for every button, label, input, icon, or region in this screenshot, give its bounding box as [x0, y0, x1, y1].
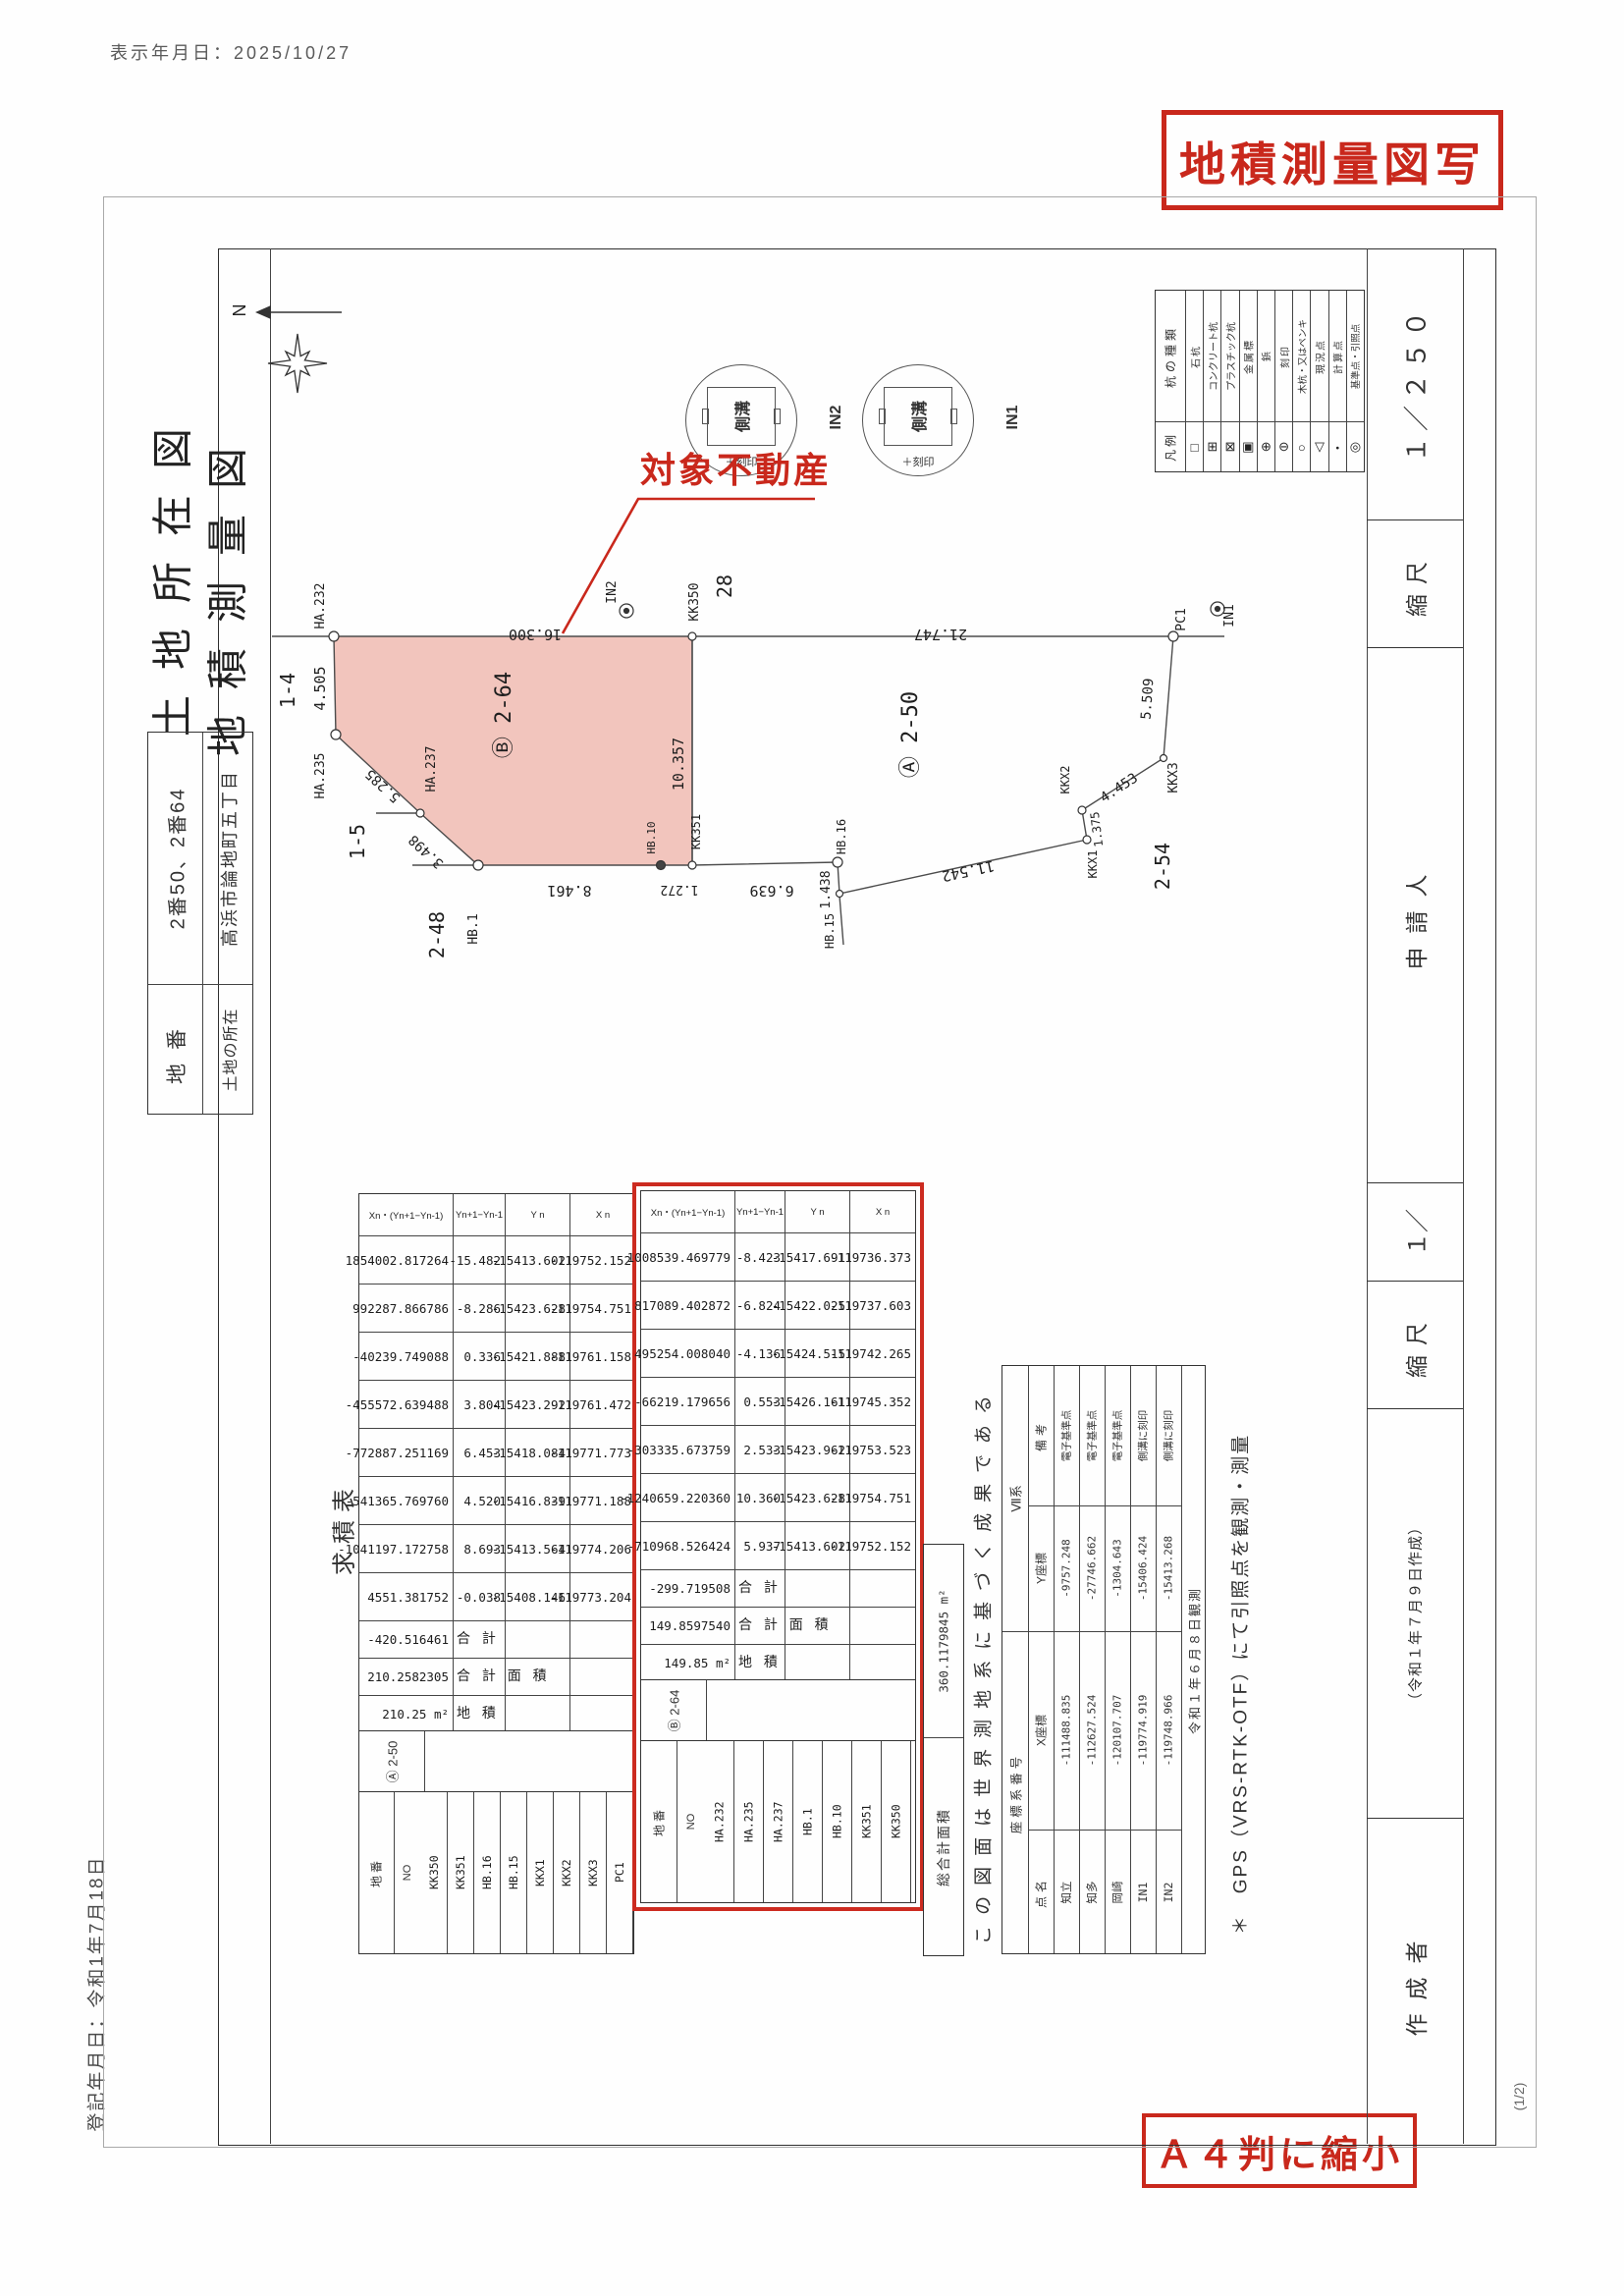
header-yn: Y n	[506, 1194, 569, 1235]
point-name: KK351	[448, 1792, 474, 1953]
table1-grid: Xn・(Yn+1−Yn-1) 1854002.817264992287.8667…	[358, 1193, 634, 1731]
legend-type-header: 杭の種類	[1163, 324, 1179, 387]
remark-value: 電子基準点	[1059, 1410, 1074, 1462]
grand-total-box: 360.1179845 m² 総合計面積	[923, 1544, 964, 1956]
gutter-label: 側溝	[730, 401, 753, 432]
table2-grid: Xn・(Yn+1−Yn-1) 1008539.469779817089.4028…	[640, 1190, 916, 1680]
name-cell: 岡崎	[1105, 1830, 1130, 1955]
marker-kkx2	[1078, 806, 1086, 814]
name-cell: 知多	[1079, 1830, 1105, 1955]
xn-value: -119754.751	[570, 1284, 635, 1332]
yn-values: -15413.602-15423.628-15421.888-15423.292…	[506, 1235, 569, 1620]
legend-label: 現況点	[1313, 339, 1327, 374]
xn-value: -119753.523	[850, 1425, 915, 1473]
legend-table: 杭の種類 凡例 石杭□ コンクリート杭⊞ プラスチック杭⊠ 金属標▣ 鋲⊕ 刻印…	[1155, 290, 1365, 472]
sys-value-cell: Ⅶ系	[1002, 1366, 1028, 1631]
col-yn: Y n -15413.602-15423.628-15421.888-15423…	[505, 1194, 569, 1730]
remark-value: 電子基準点	[1085, 1410, 1100, 1462]
chiban-header: 地番	[651, 1807, 668, 1836]
xn-value: -119745.352	[850, 1377, 915, 1425]
x-cell: -119748.966	[1156, 1631, 1181, 1830]
pt-pc1: PC1	[1174, 608, 1189, 630]
pt-kk351: KK351	[689, 814, 703, 849]
name-value: IN1	[1136, 1883, 1150, 1903]
y-cell: -27746.662	[1079, 1505, 1105, 1631]
gutter-tab-left	[702, 409, 709, 424]
observation-note-cell: 令和１年６月８日観測	[1181, 1366, 1207, 1955]
scale2-label: 縮尺	[1398, 1313, 1432, 1378]
spacer	[706, 1680, 915, 1740]
chiban-label: 地番	[161, 1015, 190, 1084]
legend-item: 基準点・引照点◎	[1346, 291, 1364, 471]
y-value: -1304.643	[1111, 1539, 1124, 1598]
scale-value-cell: １／２５０	[1367, 248, 1463, 520]
point-name: HA.235	[734, 1741, 764, 1902]
point-name-band: 地番 NO HA.232HA.235HA.237HB.1HB.10KK351KK…	[640, 1741, 916, 1903]
y-value: -15406.424	[1137, 1536, 1150, 1601]
remark-cell: 電子基準点	[1054, 1366, 1079, 1505]
point-name: KK350	[421, 1792, 448, 1953]
total-label: 合 計	[457, 1628, 500, 1648]
adj-parcel-1-4: 1-4	[276, 673, 299, 708]
legend-symbol: ⊕	[1258, 422, 1274, 471]
pt-hb1: HB.1	[466, 913, 481, 944]
no-header: NO	[685, 1814, 697, 1831]
cadastral-map: 16.300 21.747 8.461 1.272 6.639 11.542 4…	[226, 550, 1267, 1002]
remark-value: 側溝に刻印	[1136, 1410, 1151, 1462]
y-header: Y座標	[1033, 1553, 1050, 1584]
legend-label: 鋲	[1259, 352, 1273, 361]
spacer	[570, 1695, 635, 1732]
col-product: Xn・(Yn+1−Yn-1) 1854002.817264992287.8667…	[359, 1194, 453, 1730]
point-name: PC1	[607, 1792, 633, 1953]
header-dy: Yn+1−Yn-1	[735, 1191, 785, 1232]
pt-ha235: HA.235	[313, 753, 328, 799]
product-value: -455572.639488	[359, 1380, 453, 1428]
spacer	[850, 1644, 915, 1681]
area-table-2-64: Xn・(Yn+1−Yn-1) 1008539.469779817089.4028…	[640, 1190, 916, 1903]
header-yn: Y n	[785, 1191, 849, 1232]
legend-item: 金属標▣	[1239, 291, 1257, 471]
xn-value: -119754.751	[850, 1473, 915, 1521]
engrave-mark-label: ＋刻印	[902, 454, 935, 469]
point-name: HA.232	[705, 1741, 734, 1902]
y-value: -27746.662	[1086, 1536, 1099, 1601]
y-header-cell: Y座標	[1028, 1505, 1054, 1631]
location-label-cell: 土地の所在	[203, 984, 254, 1116]
remark-cell: 側溝に刻印	[1130, 1366, 1156, 1505]
product-value: -1041197.172758	[359, 1524, 453, 1572]
legend-item: 現況点▽	[1310, 291, 1327, 471]
product-value: 495254.008040	[641, 1329, 734, 1377]
spacer	[850, 1607, 915, 1644]
col-dy: Yn+1−Yn-1 -15.482-8.2860.3363.8046.4534.…	[453, 1194, 505, 1730]
point-name: HB.1	[793, 1741, 823, 1902]
xn-value: -119773.204	[570, 1572, 635, 1620]
pt-ha232: HA.232	[313, 583, 328, 629]
dim-b-bottom2: 1.272	[660, 882, 698, 897]
area-value: 210.25 m²	[359, 1695, 453, 1732]
pt-kkx1: KKX1	[1086, 850, 1100, 879]
pt-in2: IN2	[605, 580, 620, 603]
spacer	[570, 1658, 635, 1695]
gps-note: ＊ GPS（VRS-RTK-OTF）にて引照点を観測・測量	[1226, 1434, 1253, 1936]
xn-value: -119752.152	[850, 1521, 915, 1569]
x-cell: -119774.919	[1130, 1631, 1156, 1830]
product-value: 1854002.817264	[359, 1235, 453, 1284]
legend-item: 石杭□	[1185, 291, 1203, 471]
product-value: -710968.526424	[641, 1521, 734, 1569]
author-label: 作成者	[1398, 1927, 1432, 2036]
extension-line	[839, 896, 843, 945]
name-cell: 知立	[1054, 1830, 1079, 1955]
legend-symbol: ▽	[1311, 422, 1327, 471]
y-cell: -1304.643	[1105, 1505, 1130, 1631]
parcel-id-strip: Ⓑ 2-64	[640, 1680, 916, 1741]
xn-value: -119761.472	[570, 1380, 635, 1428]
parcel-id-cell: Ⓑ 2-64	[641, 1680, 706, 1740]
legend-symbol: ⊞	[1204, 422, 1220, 471]
dy-values: -15.482-8.2860.3363.8046.4534.5208.693-0…	[454, 1235, 505, 1620]
point-name: HB.10	[823, 1741, 852, 1902]
applicant-cell: 申請人	[1367, 648, 1463, 1183]
legend-label: 石杭	[1187, 345, 1202, 368]
legend-item: 刻印⊖	[1274, 291, 1292, 471]
xn-values: -119752.152-119754.751-119761.158-119761…	[570, 1235, 635, 1620]
display-date: 表示年月日：2025/10/27	[110, 39, 352, 65]
product-value: -1240659.220360	[641, 1473, 734, 1521]
titleblock-divider-2	[1463, 248, 1464, 2144]
marker-ha232	[329, 631, 339, 641]
scale-value: １／２５０	[1397, 305, 1434, 463]
grand-total-value-cell: 360.1179845 m²	[924, 1545, 963, 1737]
x-value: -111488.835	[1060, 1695, 1073, 1767]
product-value: -66219.179656	[641, 1377, 734, 1425]
xn-value: -119736.373	[850, 1232, 915, 1281]
marker-kkx1	[1083, 836, 1091, 844]
total-area-label: 合 計 面 積	[457, 1666, 551, 1685]
chiban-header-cell: 地番	[641, 1741, 677, 1902]
marker-hb1	[473, 860, 483, 870]
frame-inner-line	[270, 248, 271, 2144]
col-xn: X n -119752.152-119754.751-119761.158-11…	[569, 1194, 635, 1730]
marker-in1-dot	[1216, 607, 1220, 612]
marker-ha237	[416, 809, 424, 817]
legend-label: 刻印	[1276, 345, 1291, 368]
legend-legend-header-cell: 凡例	[1156, 422, 1185, 471]
parcel-a-label: Ⓐ 2-50	[898, 691, 923, 778]
legend-symbol: ○	[1293, 422, 1310, 471]
parcel-id: Ⓑ 2-64	[665, 1689, 683, 1731]
name-value: 知多	[1084, 1882, 1100, 1904]
product-value: -40239.749088	[359, 1332, 453, 1380]
pt-in1: IN1	[1222, 604, 1237, 627]
total-area-value: 149.8597540	[641, 1607, 734, 1644]
x-cell: -120107.707	[1105, 1631, 1130, 1830]
legend-label: 木杭・又はペンキ	[1295, 318, 1309, 393]
no-header: NO	[402, 1865, 413, 1882]
coord-sys-value: Ⅶ系	[1006, 1485, 1025, 1512]
adj-parcel-28: 28	[713, 574, 736, 598]
remark-cell: 電子基準点	[1079, 1366, 1105, 1505]
area-table-2-50: Xn・(Yn+1−Yn-1) 1854002.817264992287.8667…	[358, 1193, 634, 1954]
point-name-band: 地番 NO KK350KK351HB.16HB.15KKX1KKX2KKX3PC…	[358, 1792, 634, 1954]
marker-hb16	[833, 857, 842, 867]
marker-in2-dot	[624, 609, 629, 614]
boundary-lines	[272, 636, 1224, 945]
name-value: 知立	[1058, 1882, 1074, 1904]
remark-cell: 電子基準点	[1105, 1366, 1130, 1505]
name-header: 点名	[1033, 1877, 1050, 1908]
parcel-b-label: Ⓑ 2-64	[492, 672, 516, 758]
dim-b-right: 10.357	[670, 738, 687, 791]
header-dy: Yn+1−Yn-1	[454, 1194, 505, 1235]
legend-symbol: ◎	[1347, 422, 1364, 471]
header-product: Xn・(Yn+1−Yn-1)	[641, 1191, 734, 1232]
product-values: 1854002.817264992287.866786-40239.749088…	[359, 1235, 453, 1620]
scale2-value: １／	[1398, 1209, 1433, 1256]
legend-item: プラスチック杭⊠	[1220, 291, 1238, 471]
point-name: KK350	[882, 1741, 911, 1902]
xn-value: -119737.603	[850, 1281, 915, 1329]
pt-hb16: HB.16	[835, 819, 848, 854]
spacer	[850, 1569, 915, 1607]
pt-kkx2: KKX2	[1058, 766, 1072, 794]
x-value: -112627.524	[1086, 1695, 1099, 1767]
xn-value: -119742.265	[850, 1329, 915, 1377]
x-value: -119748.966	[1163, 1695, 1175, 1767]
pt-hb10: HB.10	[645, 821, 658, 853]
x-cell: -111488.835	[1054, 1631, 1079, 1830]
coordinate-table: Ⅶ系 座標系番号 備考 Y座標 X座標 点名 電子基準点 -9757.248 -…	[1001, 1365, 1206, 1954]
detail-circle-in1: 側溝 ＋刻印	[862, 364, 974, 476]
point-name: HA.237	[764, 1741, 793, 1902]
xn-value: -119771.773	[570, 1428, 635, 1476]
area-value: 149.85 m²	[641, 1644, 734, 1681]
scale-label: 縮尺	[1398, 552, 1432, 617]
gutter-label: 側溝	[906, 401, 930, 432]
legend-symbol: ⊠	[1221, 422, 1238, 471]
name-header-cell: 点名	[1028, 1830, 1054, 1955]
dim-a-top: 21.747	[914, 626, 967, 643]
spacer	[506, 1620, 569, 1658]
col-dy: Yn+1−Yn-1 -8.423-6.824-4.1360.5532.53310…	[734, 1191, 785, 1679]
chiban-value-cell: 2番50、2番64	[148, 733, 202, 984]
marker-ha235	[331, 730, 341, 739]
chiban-value: 2番50、2番64	[161, 788, 189, 930]
parcel-id-strip: Ⓐ 2-50	[358, 1731, 634, 1792]
pt-ha237: HA.237	[424, 746, 439, 793]
dim-a-jog: 1.438	[819, 870, 834, 908]
marker-hb15	[837, 891, 843, 898]
legend-symbol: □	[1186, 422, 1203, 471]
chiban-header: 地番	[368, 1858, 385, 1887]
name-value: IN2	[1162, 1883, 1175, 1903]
no-header-cell: NO	[394, 1792, 421, 1953]
dim-a-bottom1: 6.639	[749, 882, 793, 900]
y-value: -9757.248	[1060, 1539, 1073, 1598]
point-names: KK350KK351HB.16HB.15KKX1KKX2KKX3PC1	[421, 1792, 633, 1953]
header-xn: X n	[850, 1191, 915, 1232]
north-label: N	[231, 304, 249, 317]
x-header: X座標	[1033, 1715, 1050, 1746]
legend-symbol: ・	[1329, 422, 1346, 471]
product-value: 992287.866786	[359, 1284, 453, 1332]
doc-title-land-location: 土地所在図	[140, 403, 200, 737]
spacer	[570, 1620, 635, 1658]
remark-value: 側溝に刻印	[1162, 1410, 1176, 1462]
scale-label-cell: 縮尺	[1367, 520, 1463, 648]
gutter-tab-right	[774, 409, 781, 424]
marker-hb10	[657, 861, 666, 870]
legend-item: 計算点・	[1328, 291, 1346, 471]
point-name: KK351	[852, 1741, 882, 1902]
total-value: -299.719508	[641, 1569, 734, 1607]
gutter-tab-right	[950, 409, 957, 424]
applicant-label: 申請人	[1398, 861, 1432, 970]
legend-legend-header: 凡例	[1163, 432, 1179, 462]
legend-label: コンクリート杭	[1205, 322, 1219, 391]
y-value: -15413.268	[1163, 1536, 1175, 1601]
sys-label-cell: 座標系番号	[1002, 1631, 1028, 1955]
dim-b-bottom1: 8.461	[547, 882, 591, 900]
grand-total-value: 360.1179845 m²	[937, 1589, 951, 1692]
gutter-section: 側溝	[707, 387, 776, 446]
total-area-value: 210.2582305	[359, 1658, 453, 1695]
product-value: 1008539.469779	[641, 1232, 734, 1281]
col-yn: Y n -15417.691-15422.025-15424.515-15426…	[785, 1191, 849, 1679]
dim-a-diag: 4.453	[1098, 770, 1141, 805]
name-value: 岡崎	[1110, 1882, 1125, 1904]
remark-cell: 側溝に刻印	[1156, 1366, 1181, 1505]
y-cell: -15406.424	[1130, 1505, 1156, 1631]
parcel-a-polygon	[692, 636, 1173, 894]
legend-item: 鋲⊕	[1257, 291, 1274, 471]
no-header-cell: NO	[677, 1741, 705, 1902]
total-value: -420.516461	[359, 1620, 453, 1658]
marker-kkx3	[1161, 755, 1167, 762]
product-value: -541365.769760	[359, 1476, 453, 1524]
dim-a-bottom2: 11.542	[941, 856, 997, 885]
xn-values: -119736.373-119737.603-119742.265-119745…	[850, 1232, 915, 1569]
legend-header-col: 杭の種類 凡例	[1156, 291, 1185, 471]
gutter-tab-left	[879, 409, 886, 424]
product-value: 4551.381752	[359, 1572, 453, 1620]
adj-parcel-2-54: 2-54	[1151, 843, 1174, 890]
adj-parcel-2-48: 2-48	[425, 911, 449, 958]
adj-parcel-1-5: 1-5	[346, 824, 369, 859]
product-value: -772887.251169	[359, 1428, 453, 1476]
point-name: KKX2	[554, 1792, 580, 1953]
point-name: HB.15	[501, 1792, 527, 1953]
location-label: 土地の所在	[217, 1008, 241, 1091]
marker-kk351	[688, 861, 696, 869]
scale2-label-cell: 縮尺	[1367, 1282, 1463, 1409]
chiban-label-cell: 地番	[148, 984, 202, 1116]
copy-stamp: 地積測量図写	[1162, 110, 1503, 210]
dim-b-left: 4.505	[311, 666, 329, 710]
header-product: Xn・(Yn+1−Yn-1)	[359, 1194, 453, 1235]
point-names: HA.232HA.235HA.237HB.1HB.10KK351KK350	[705, 1741, 911, 1902]
spacer	[506, 1695, 569, 1732]
north-compass: N	[231, 280, 358, 417]
observation-note: 令和１年６月８日観測	[1185, 1587, 1204, 1734]
remark-header-cell: 備考	[1028, 1366, 1054, 1505]
product-value: 817089.402872	[641, 1281, 734, 1329]
xn-value: -119774.206	[570, 1524, 635, 1572]
grand-total-label: 総合計面積	[934, 1808, 953, 1886]
legend-symbol: ⊖	[1275, 422, 1292, 471]
grand-total-label-cell: 総合計面積	[924, 1737, 963, 1957]
dim-b-top: 16.300	[509, 626, 562, 643]
detail-in2-label: IN2	[828, 406, 845, 430]
scanned-survey-document: 表示年月日：2025/10/27 地積測量図写 Ａ４判に縮小 登記年月日：令和1…	[0, 0, 1624, 2296]
y-cell: -9757.248	[1054, 1505, 1079, 1631]
scale2-value-cell: １／	[1367, 1183, 1463, 1282]
name-cell: IN1	[1130, 1830, 1156, 1955]
product-value: -303335.673759	[641, 1425, 734, 1473]
author-cell: 作成者	[1367, 1819, 1463, 2144]
compass-rose	[268, 334, 327, 393]
x-cell: -112627.524	[1079, 1631, 1105, 1830]
col-product: Xn・(Yn+1−Yn-1) 1008539.469779817089.4028…	[641, 1191, 734, 1679]
pt-kkx3: KKX3	[1166, 762, 1181, 793]
legend-symbol: ▣	[1240, 422, 1257, 471]
gutter-section: 側溝	[884, 387, 952, 446]
xn-value: -119761.158	[570, 1332, 635, 1380]
parcel-id-cell: Ⓐ 2-50	[359, 1731, 424, 1791]
legend-label: 金属標	[1241, 339, 1256, 374]
legend-type-header-cell: 杭の種類	[1156, 291, 1185, 422]
xn-value: -119752.152	[570, 1235, 635, 1284]
x-value: -119774.919	[1137, 1695, 1150, 1767]
y-cell: -15413.268	[1156, 1505, 1181, 1631]
spacer	[785, 1569, 849, 1607]
point-name: HB.16	[474, 1792, 501, 1953]
marker-kk350	[688, 632, 696, 640]
pt-kk350: KK350	[687, 582, 702, 621]
area-label: 地 積	[457, 1703, 500, 1722]
coord-sys-label: 座標系番号	[1006, 1753, 1025, 1834]
total-label: 合 計	[738, 1577, 782, 1597]
legend-label: プラスチック杭	[1223, 322, 1238, 391]
header-xn: X n	[570, 1194, 635, 1235]
remark-header: 備考	[1033, 1420, 1050, 1451]
dim-a-right: 5.509	[1139, 678, 1158, 720]
detail-in1-label: IN1	[1004, 406, 1022, 430]
name-cell: IN2	[1156, 1830, 1181, 1955]
chiban-header-cell: 地番	[359, 1792, 394, 1953]
point-name: KKX1	[527, 1792, 554, 1953]
legend-label: 基準点・引照点	[1348, 323, 1362, 389]
legend-item: コンクリート杭⊞	[1203, 291, 1220, 471]
product-values: 1008539.469779817089.402872495254.008040…	[641, 1232, 734, 1569]
legend-item: 木杭・又はペンキ○	[1292, 291, 1310, 471]
point-name: KKX3	[580, 1792, 607, 1953]
area-label: 地 積	[738, 1652, 782, 1671]
col-xn: X n -119736.373-119737.603-119742.265-11…	[849, 1191, 915, 1679]
spacer	[785, 1644, 849, 1681]
total-area-label: 合 計 面 積	[738, 1614, 833, 1634]
x-value: -120107.707	[1111, 1695, 1124, 1767]
created-date: （令和１年７月９日作成）	[1405, 1519, 1426, 1708]
legend-label: 計算点	[1330, 339, 1345, 374]
dim-a-jog2: 1.375	[1088, 811, 1106, 848]
remark-value: 電子基準点	[1110, 1410, 1125, 1462]
parcel-id: Ⓐ 2-50	[383, 1740, 402, 1782]
marker-pc1	[1168, 631, 1178, 641]
x-header-cell: X座標	[1028, 1631, 1054, 1830]
